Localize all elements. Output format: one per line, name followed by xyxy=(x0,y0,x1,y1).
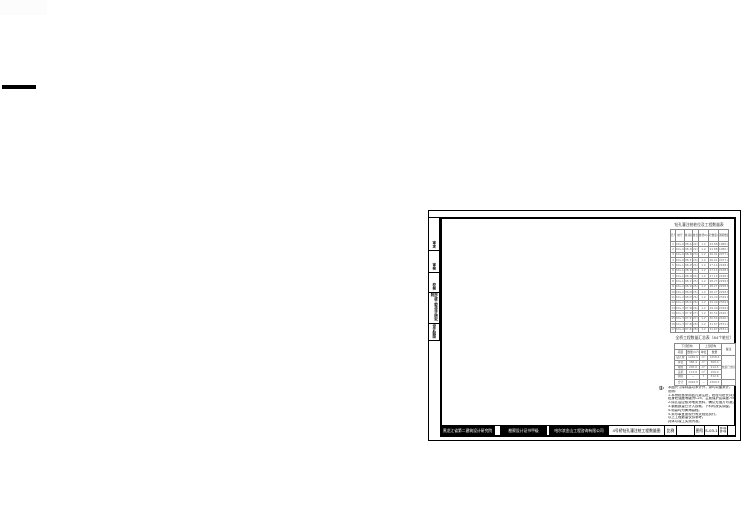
remark-header: 备注 xyxy=(722,344,736,356)
sheet-number-cell: S-03-1 xyxy=(704,426,718,435)
signature-cell: 市政工程设计研究院 xyxy=(429,293,439,324)
sheet-label-cell: 图号 xyxy=(694,426,704,435)
title-block-bar: 黑龙江省第二建筑设计研究院 勘察设计证书甲级 哈尔滨金山工程咨询有限公司 4号桥… xyxy=(441,425,735,435)
table-cell: 97.84 xyxy=(685,327,693,333)
certificate-cell: 勘察设计证书甲级 xyxy=(500,426,546,435)
signature-cell: 审定 xyxy=(429,218,439,251)
left-rule-mark xyxy=(2,85,36,89)
blank-cell xyxy=(676,426,694,435)
col-header: 桩径D(m) xyxy=(699,230,709,242)
table-cell: 合计 xyxy=(675,380,687,386)
pile-table-body: 1K0+015.098.4222.01.224.881986.42K0+040.… xyxy=(671,242,729,333)
table-cell: K0+415.0 xyxy=(676,327,685,333)
table-row: 17K0+415.097.8428.01.231.672531.2 xyxy=(671,327,729,333)
notes-block: 本图尺寸除标高以米计外，余均以厘米计。说明：1.本桥桩基采用钻孔灌注桩，桩径与桩… xyxy=(668,386,734,424)
table-cell: 1.2 xyxy=(699,327,709,333)
institute-name-cell: 黑龙江省第二建筑设计研究院 xyxy=(441,426,494,435)
summary-table-title: 全桥工程数量汇总表（84个桩位） xyxy=(674,335,735,341)
table-cell: 2026.8 xyxy=(687,380,700,386)
signature-label: 审核 xyxy=(432,263,436,270)
quantity-summary-table: 下部结构 上部结构 备注 项目 数量(m³) 单位 数量 钻孔桩 1260.0 … xyxy=(674,343,736,386)
page-canvas: 审定 审核 校核 市政工程设计研究院 设计制图 钻孔灌注桩桩位及工程数量表 孔号… xyxy=(0,0,749,530)
notes-marker: 注: xyxy=(659,386,664,391)
col-header: 砼数量(m³) xyxy=(709,230,719,242)
signature-label: 校核 xyxy=(432,283,436,290)
signature-label: 市政工程设计研究院 xyxy=(431,293,438,321)
table-cell: — xyxy=(700,380,708,386)
company-name-cell: 哈尔滨金山工程咨询有限公司 xyxy=(549,426,608,435)
corner-highlight-block xyxy=(0,0,47,15)
pile-table-title: 钻孔灌注桩桩位及工程数量表 xyxy=(668,222,730,228)
remark-cell: 数量已含损耗 xyxy=(722,356,736,380)
blank-cell xyxy=(727,426,735,435)
signature-label: 审定 xyxy=(432,241,436,248)
signature-cell: 审核 xyxy=(429,251,439,273)
signature-cell: 校核 xyxy=(429,273,439,293)
table-cell: 2531.2 xyxy=(719,327,729,333)
col-header: 钢筋数量(kg) xyxy=(719,230,729,242)
page-count-line: 第1张 xyxy=(720,431,727,434)
table-cell: 31.67 xyxy=(709,327,719,333)
note-line: 具体以竣工实测为准。 xyxy=(668,420,734,424)
signature-tab-column: 审定 审核 校核 市政工程设计研究院 设计制图 xyxy=(428,217,440,341)
scale-label-cell: 比例 xyxy=(664,426,676,435)
drawing-title-cell: 4号桥钻孔灌注桩工程数量图 xyxy=(608,426,664,435)
col-header: 桩号 xyxy=(676,230,685,242)
table-cell xyxy=(722,380,736,386)
table-cell: 2309.5 xyxy=(708,380,722,386)
pile-quantity-table: 孔号 桩号 桩顶标高(m) 桩长(m) 桩径D(m) 砼数量(m³) 钢筋数量(… xyxy=(670,229,729,333)
signature-cell: 设计制图 xyxy=(429,324,439,340)
table-header-row: 孔号 桩号 桩顶标高(m) 桩长(m) 桩径D(m) 砼数量(m³) 钢筋数量(… xyxy=(671,230,729,242)
signature-label: 设计制图 xyxy=(432,324,436,338)
col-header: 桩顶标高(m) xyxy=(685,230,693,242)
total-row: 合计 2026.8 — 2309.5 xyxy=(675,380,736,386)
page-count-cell: 共1张 第1张 xyxy=(718,426,727,435)
